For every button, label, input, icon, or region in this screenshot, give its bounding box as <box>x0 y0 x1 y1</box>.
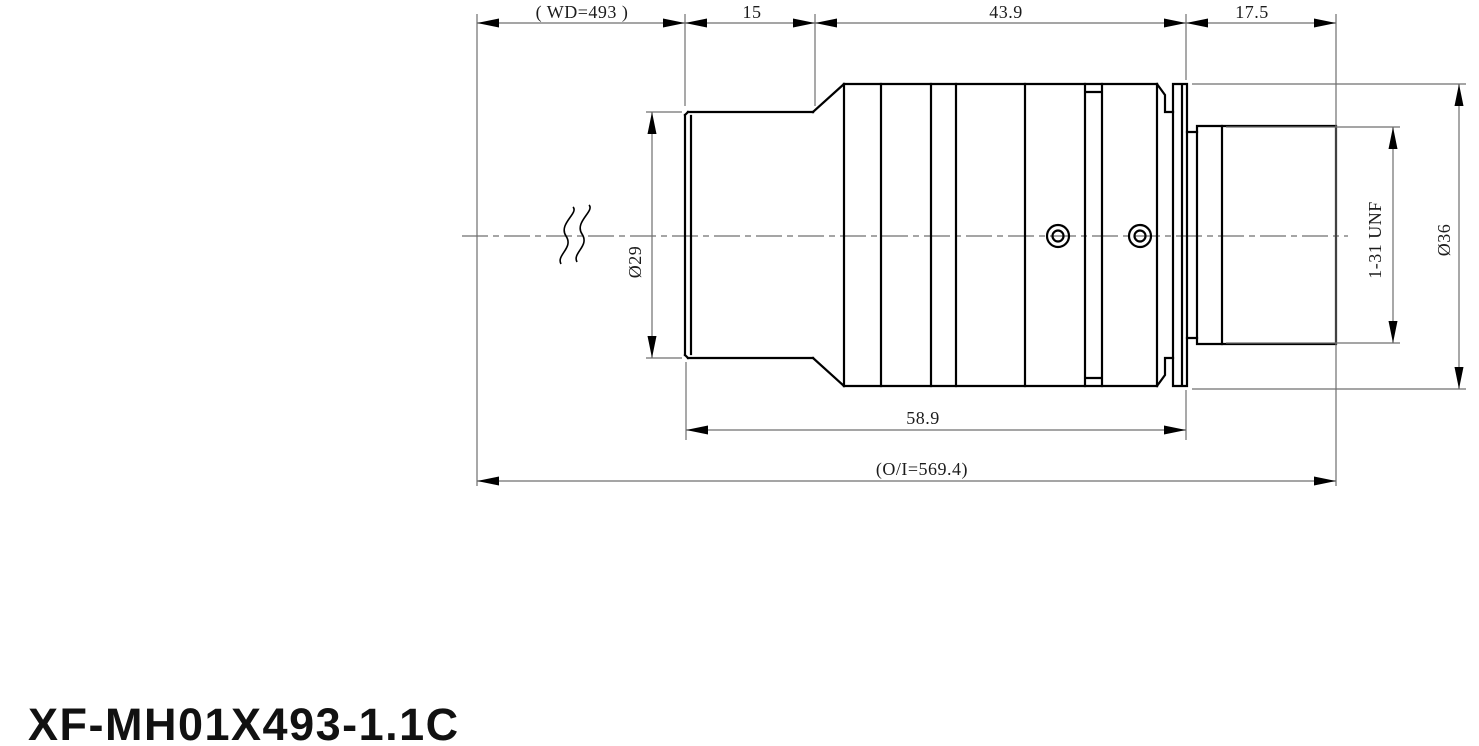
arrow-15-left <box>685 19 707 28</box>
lens-outline <box>685 84 1336 386</box>
mount-thread-barrel <box>1222 126 1336 344</box>
break-symbol <box>560 205 590 264</box>
arrow-589-left <box>686 426 708 435</box>
flange-plate <box>1173 84 1187 386</box>
body-section-lines <box>844 84 1025 386</box>
label-object-image-distance: (O/I=569.4) <box>876 459 968 480</box>
arrow-589-right <box>1164 426 1186 435</box>
label-body-length: 58.9 <box>906 408 940 428</box>
arrow-43-right <box>1164 19 1186 28</box>
label-working-distance: ( WD=493 ) <box>536 2 629 23</box>
arrow-wd-right <box>663 19 685 28</box>
label-body-diameter: Ø36 <box>1434 224 1454 257</box>
arrow-43-left <box>815 19 837 28</box>
arrow-oi-right <box>1314 477 1336 486</box>
label-mid-length: 43.9 <box>989 2 1023 22</box>
mount-flange <box>1173 84 1197 386</box>
main-body <box>844 84 1173 386</box>
body-groove <box>1085 84 1102 386</box>
arrow-17-left <box>1186 19 1208 28</box>
dimension-labels: ( WD=493 ) 15 43.9 17.5 58.9 (O/I=569.4)… <box>536 2 1454 480</box>
drawing-title: XF-MH01X493-1.1C <box>28 699 460 746</box>
arrow-17-right <box>1314 19 1336 28</box>
front-face <box>685 112 691 358</box>
break-curve-right <box>576 205 590 262</box>
taper-cone <box>813 84 844 386</box>
lens-technical-drawing: ( WD=493 ) 15 43.9 17.5 58.9 (O/I=569.4)… <box>0 0 1479 746</box>
label-front-diameter: Ø29 <box>625 246 645 279</box>
front-barrel <box>685 112 813 358</box>
arrow-wd-left <box>477 19 499 28</box>
drawing-canvas: ( WD=493 ) 15 43.9 17.5 58.9 (O/I=569.4)… <box>0 0 1479 746</box>
label-rear-length: 17.5 <box>1235 2 1269 22</box>
flange-step-ring <box>1187 132 1197 338</box>
arrow-unf-top <box>1389 127 1398 149</box>
arrow-d36-top <box>1455 84 1464 106</box>
front-barrel-edges <box>688 112 813 358</box>
lock-ring <box>1197 126 1222 344</box>
arrow-d29-top <box>648 112 657 134</box>
body-rear-chamfer <box>1157 84 1173 386</box>
arrow-d36-bottom <box>1455 367 1464 389</box>
arrow-d29-bottom <box>648 336 657 358</box>
arrow-15-right <box>793 19 815 28</box>
label-mount-thread: 1-31 UNF <box>1365 201 1385 279</box>
thread-barrel <box>1197 126 1336 344</box>
arrow-oi-left <box>477 477 499 486</box>
arrow-unf-bottom <box>1389 321 1398 343</box>
body-edges <box>844 84 1157 386</box>
label-front-length: 15 <box>743 2 762 22</box>
